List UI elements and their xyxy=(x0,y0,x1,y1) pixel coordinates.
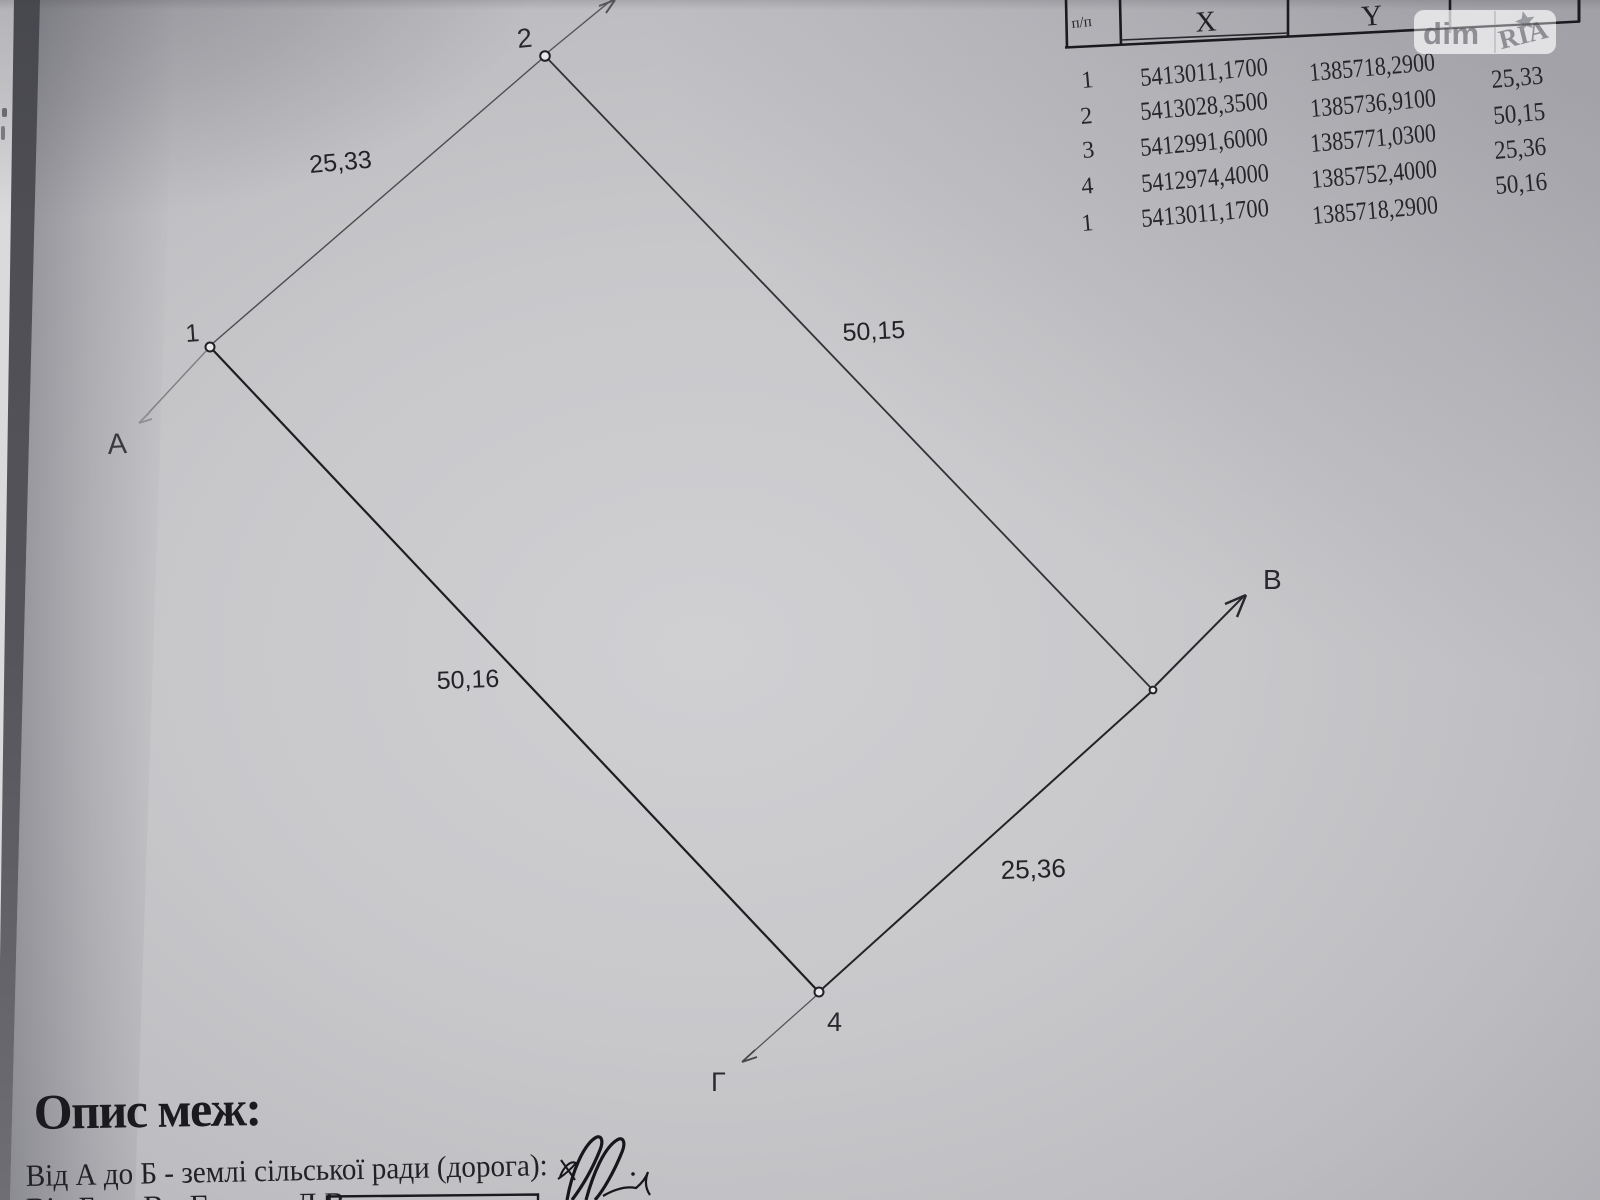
svg-text:2: 2 xyxy=(1079,103,1093,130)
svg-text:Опис меж:: Опис меж: xyxy=(33,1080,261,1140)
svg-text:В: В xyxy=(1263,564,1282,595)
svg-text:25,33: 25,33 xyxy=(308,146,373,179)
svg-text:1: 1 xyxy=(184,319,200,348)
svg-text:dim: dim xyxy=(1423,16,1480,51)
svg-text:50,15: 50,15 xyxy=(842,316,906,347)
svg-text:X: X xyxy=(1194,5,1217,38)
svg-text:А: А xyxy=(107,428,129,461)
svg-text:50,15: 50,15 xyxy=(1492,97,1546,130)
svg-text:Y: Y xyxy=(1360,0,1383,33)
svg-text:50,16: 50,16 xyxy=(1494,167,1548,200)
svg-text:4: 4 xyxy=(827,1007,842,1037)
svg-text:50,16: 50,16 xyxy=(436,665,500,695)
svg-text:4: 4 xyxy=(1080,173,1094,200)
svg-text:2: 2 xyxy=(515,23,533,54)
svg-text:Г: Г xyxy=(711,1067,726,1097)
svg-text:1: 1 xyxy=(1080,210,1094,237)
svg-text:1: 1 xyxy=(1080,67,1094,94)
svg-text:3: 3 xyxy=(1081,137,1095,164)
svg-text:25,33: 25,33 xyxy=(1490,61,1544,94)
svg-text:25,36: 25,36 xyxy=(1493,132,1547,165)
svg-text:25,36: 25,36 xyxy=(1000,853,1066,885)
svg-text:п/п: п/п xyxy=(1071,14,1093,32)
